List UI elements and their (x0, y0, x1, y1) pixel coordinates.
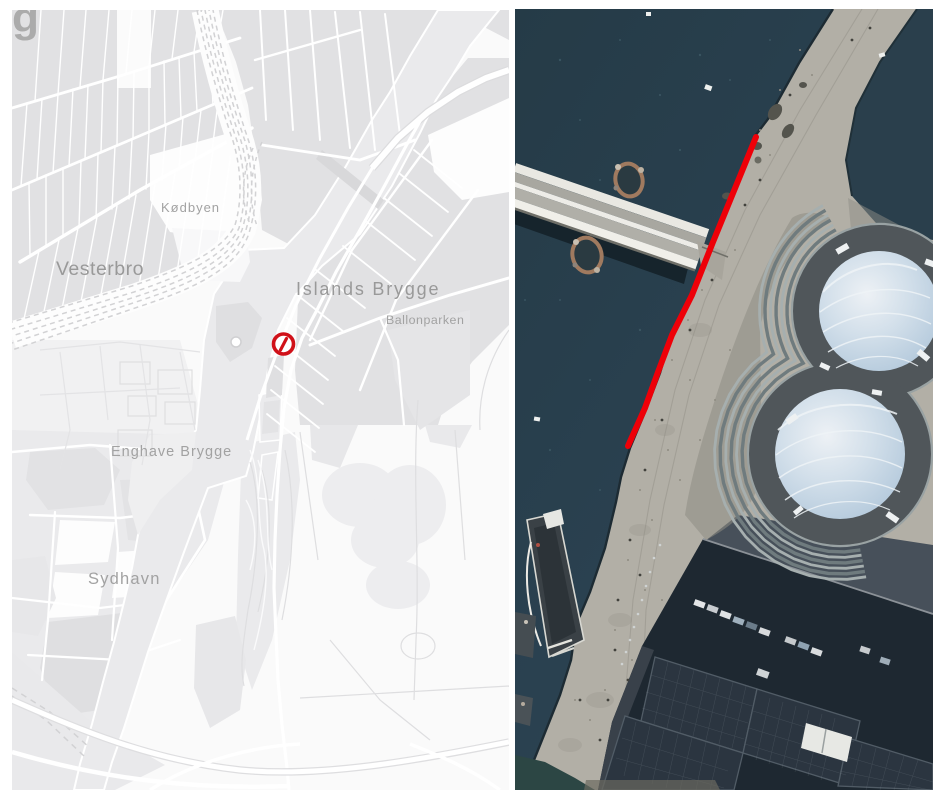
svg-text:Kødbyen: Kødbyen (161, 200, 220, 215)
svg-text:Islands Brygge: Islands Brygge (296, 279, 440, 299)
svg-text:Enghave Brygge: Enghave Brygge (111, 444, 232, 460)
svg-text:Sydhavn: Sydhavn (88, 570, 161, 588)
svg-text:Ballonparken: Ballonparken (386, 313, 464, 327)
svg-text:Vesterbro: Vesterbro (56, 258, 144, 280)
svg-text:g: g (12, 10, 39, 41)
